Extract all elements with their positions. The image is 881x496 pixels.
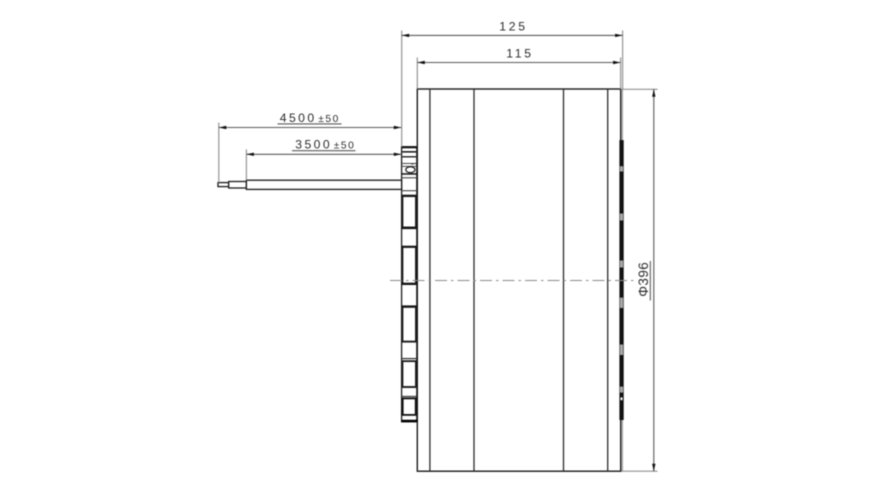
svg-text:115: 115 [506,47,534,61]
svg-text:4500: 4500 [280,111,317,125]
svg-text:±50: ±50 [318,114,340,125]
svg-text:125: 125 [499,20,527,34]
svg-text:±50: ±50 [334,141,356,152]
svg-text:3500: 3500 [295,138,332,152]
svg-text:Φ396: Φ396 [636,262,651,297]
